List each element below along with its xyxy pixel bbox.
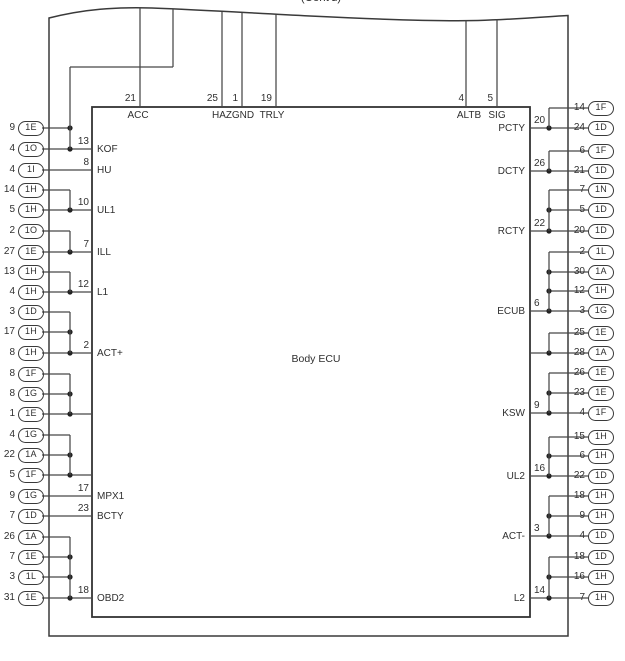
ecu-pin-number: 2 [58,340,89,351]
connector-code-oval: 1F [588,406,614,421]
connector-code-oval: 1G [18,387,44,402]
connector-pin-number: 18 [574,491,585,501]
connector-pin-number: 3 [9,572,15,582]
ecu-pin-name: DCTY [468,166,525,177]
ecu-pin-name: ACT+ [97,348,123,359]
connector-pin-number: 8 [9,369,15,379]
connector-row-right: 181H [570,488,614,504]
connector-row-right: 71N [570,182,614,198]
connector-code-oval: 1E [18,550,44,565]
connector-code-oval: 1F [18,468,44,483]
connector-row-left: 91G [0,488,44,504]
connector-row-right: 211D [570,163,614,179]
ecu-pin-number: 9 [534,400,565,411]
ecu-pin-number: 18 [58,585,89,596]
top-pin-number: 4 [434,93,464,104]
connector-pin-number: 6 [579,451,585,461]
connector-code-oval: 1D [18,305,44,320]
connector-pin-number: 4 [579,408,585,418]
connector-row-left: 221A [0,447,44,463]
connector-code-oval: 1D [588,203,614,218]
connector-row-right: 241D [570,120,614,136]
ecu-pin-name: L2 [468,593,525,604]
connector-pin-number: 1 [9,409,15,419]
connector-row-right: 141F [570,100,614,116]
connector-code-oval: 1E [588,386,614,401]
connector-pin-number: 14 [4,185,15,195]
connector-pin-number: 4 [579,531,585,541]
connector-code-oval: 1E [18,407,44,422]
ecu-pin-number: 13 [58,136,89,147]
connector-row-left: 51F [0,467,44,483]
connector-code-oval: 1E [18,121,44,136]
ecu-pin-number: 20 [534,115,565,126]
connector-row-left: 71D [0,508,44,524]
connector-pin-number: 9 [9,491,15,501]
connector-pin-number: 3 [579,306,585,316]
connector-row-right: 201D [570,223,614,239]
ecu-pin-name: KSW [468,408,525,419]
connector-pin-number: 24 [574,123,585,133]
connector-code-oval: 1G [588,304,614,319]
connector-code-oval: 1E [18,591,44,606]
connector-pin-number: 8 [9,348,15,358]
connector-row-right: 301A [570,264,614,280]
connector-code-oval: 1E [588,326,614,341]
connector-code-oval: 1H [18,203,44,218]
connector-row-left: 171H [0,324,44,340]
connector-pin-number: 15 [574,432,585,442]
top-pin-number: 5 [463,93,493,104]
ecu-pin-name: HU [97,165,111,176]
connector-code-oval: 1H [18,183,44,198]
connector-code-oval: 1D [588,164,614,179]
connector-pin-number: 20 [574,226,585,236]
connector-pin-number: 27 [4,247,15,257]
connector-code-oval: 1E [18,245,44,260]
connector-row-right: 121H [570,283,614,299]
connector-row-left: 261A [0,529,44,545]
ecu-pin-number: 14 [534,585,565,596]
connector-code-oval: 1O [18,142,44,157]
ecu-pin-number: 17 [58,483,89,494]
connector-pin-number: 21 [574,166,585,176]
ecu-pin-name: OBD2 [97,593,124,604]
connector-pin-number: 4 [9,165,15,175]
continued-label: (Cont'd) [271,0,371,5]
connector-code-oval: 1H [588,509,614,524]
connector-pin-number: 2 [9,226,15,236]
connector-row-left: 21O [0,223,44,239]
connector-code-oval: 1A [588,346,614,361]
connector-row-right: 231E [570,385,614,401]
connector-pin-number: 26 [574,368,585,378]
connector-code-oval: 1G [18,489,44,504]
connector-row-left: 11E [0,406,44,422]
ecu-pin-name: ACT- [468,531,525,542]
connector-row-left: 31D [0,304,44,320]
ecu-pin-name: KOF [97,144,118,155]
connector-code-oval: 1D [588,224,614,239]
connector-row-left: 41O [0,141,44,157]
connector-pin-number: 30 [574,267,585,277]
connector-row-right: 51D [570,202,614,218]
connector-pin-number: 5 [9,205,15,215]
connector-code-oval: 1H [18,325,44,340]
connector-code-oval: 1H [588,570,614,585]
ecu-pin-name: MPX1 [97,491,124,502]
connector-code-oval: 1D [18,509,44,524]
connector-pin-number: 17 [4,327,15,337]
connector-code-oval: 1H [588,430,614,445]
connector-code-oval: 1G [18,428,44,443]
connector-row-left: 81F [0,366,44,382]
top-pin-name: ACC [108,110,168,121]
connector-row-left: 81H [0,345,44,361]
wiring-diagram-page: (Cont'd) Body ECU 21ACC25HAZ1GND19TRLY4A… [0,0,625,661]
ecu-pin-name: BCTY [97,511,124,522]
connector-row-right: 161H [570,569,614,585]
ecu-pin-name: ILL [97,247,111,258]
connector-row-left: 81G [0,386,44,402]
connector-code-oval: 1A [588,265,614,280]
ecu-pin-number: 22 [534,218,565,229]
connector-pin-number: 7 [579,185,585,195]
connector-pin-number: 18 [574,552,585,562]
connector-pin-number: 8 [9,389,15,399]
connector-row-left: 311E [0,590,44,606]
connector-pin-number: 31 [4,593,15,603]
connector-row-left: 51H [0,202,44,218]
connector-code-oval: 1H [588,449,614,464]
ecu-title: Body ECU [256,354,376,366]
connector-row-right: 181D [570,549,614,565]
ecu-pin-name: ECUB [468,306,525,317]
connector-pin-number: 22 [574,471,585,481]
connector-pin-number: 12 [574,286,585,296]
connector-pin-number: 25 [574,328,585,338]
connector-row-left: 71E [0,549,44,565]
ecu-pin-number: 26 [534,158,565,169]
ecu-pin-number: 3 [534,523,565,534]
ecu-pin-name: PCTY [468,123,525,134]
wiring-lines-layer [0,0,625,661]
connector-code-oval: 1H [18,285,44,300]
connector-row-left: 41I [0,162,44,178]
ecu-pin-name: UL2 [468,471,525,482]
connector-row-right: 61H [570,448,614,464]
ecu-pin-name: UL1 [97,205,115,216]
connector-pin-number: 16 [574,572,585,582]
connector-row-left: 271E [0,244,44,260]
connector-row-left: 141H [0,182,44,198]
connector-code-oval: 1I [18,163,44,178]
connector-row-right: 251E [570,325,614,341]
connector-row-right: 71H [570,590,614,606]
ecu-pin-number: 12 [58,279,89,290]
connector-pin-number: 9 [579,511,585,521]
connector-code-oval: 1D [588,529,614,544]
connector-row-right: 21L [570,244,614,260]
connector-row-right: 31G [570,303,614,319]
ecu-pin-number: 6 [534,298,565,309]
connector-pin-number: 7 [9,511,15,521]
connector-row-right: 261E [570,365,614,381]
ecu-pin-number: 10 [58,197,89,208]
connector-pin-number: 4 [9,430,15,440]
connector-code-oval: 1D [588,469,614,484]
connector-row-right: 281A [570,345,614,361]
connector-pin-number: 14 [574,103,585,113]
connector-row-right: 221D [570,468,614,484]
connector-pin-number: 22 [4,450,15,460]
connector-pin-number: 4 [9,144,15,154]
ecu-pin-number: 23 [58,503,89,514]
connector-pin-number: 7 [579,593,585,603]
connector-code-oval: 1A [18,448,44,463]
ecu-pin-number: 7 [58,239,89,250]
connector-pin-number: 5 [9,470,15,480]
connector-row-right: 41F [570,405,614,421]
ecu-pin-number: 8 [58,157,89,168]
connector-pin-number: 13 [4,267,15,277]
top-pin-number: 1 [208,93,238,104]
connector-code-oval: 1N [588,183,614,198]
connector-pin-number: 23 [574,388,585,398]
connector-row-left: 31L [0,569,44,585]
connector-row-right: 61F [570,143,614,159]
connector-code-oval: 1E [588,366,614,381]
connector-code-oval: 1A [18,530,44,545]
top-pin-number: 21 [106,93,136,104]
connector-row-right: 151H [570,429,614,445]
connector-code-oval: 1F [18,367,44,382]
connector-code-oval: 1O [18,224,44,239]
connector-row-right: 41D [570,528,614,544]
connector-row-left: 91E [0,120,44,136]
connector-pin-number: 9 [9,123,15,133]
connector-code-oval: 1F [588,144,614,159]
top-pin-name: SIG [467,110,527,121]
connector-pin-number: 2 [579,247,585,257]
connector-pin-number: 4 [9,287,15,297]
connector-code-oval: 1F [588,101,614,116]
connector-pin-number: 3 [9,307,15,317]
connector-pin-number: 6 [579,146,585,156]
connector-pin-number: 5 [579,205,585,215]
connector-row-right: 91H [570,508,614,524]
connector-code-oval: 1L [18,570,44,585]
connector-code-oval: 1D [588,550,614,565]
ecu-pin-name: L1 [97,287,108,298]
connector-code-oval: 1H [588,489,614,504]
connector-row-left: 41G [0,427,44,443]
top-pin-number: 19 [242,93,272,104]
connector-code-oval: 1H [588,284,614,299]
connector-code-oval: 1H [18,265,44,280]
connector-row-left: 41H [0,284,44,300]
connector-code-oval: 1H [18,346,44,361]
connector-pin-number: 7 [9,552,15,562]
ecu-pin-number: 16 [534,463,565,474]
connector-row-left: 131H [0,264,44,280]
top-pin-name: TRLY [242,110,302,121]
ecu-pin-name: RCTY [468,226,525,237]
connector-code-oval: 1D [588,121,614,136]
connector-code-oval: 1H [588,591,614,606]
connector-pin-number: 28 [574,348,585,358]
connector-code-oval: 1L [588,245,614,260]
connector-pin-number: 26 [4,532,15,542]
